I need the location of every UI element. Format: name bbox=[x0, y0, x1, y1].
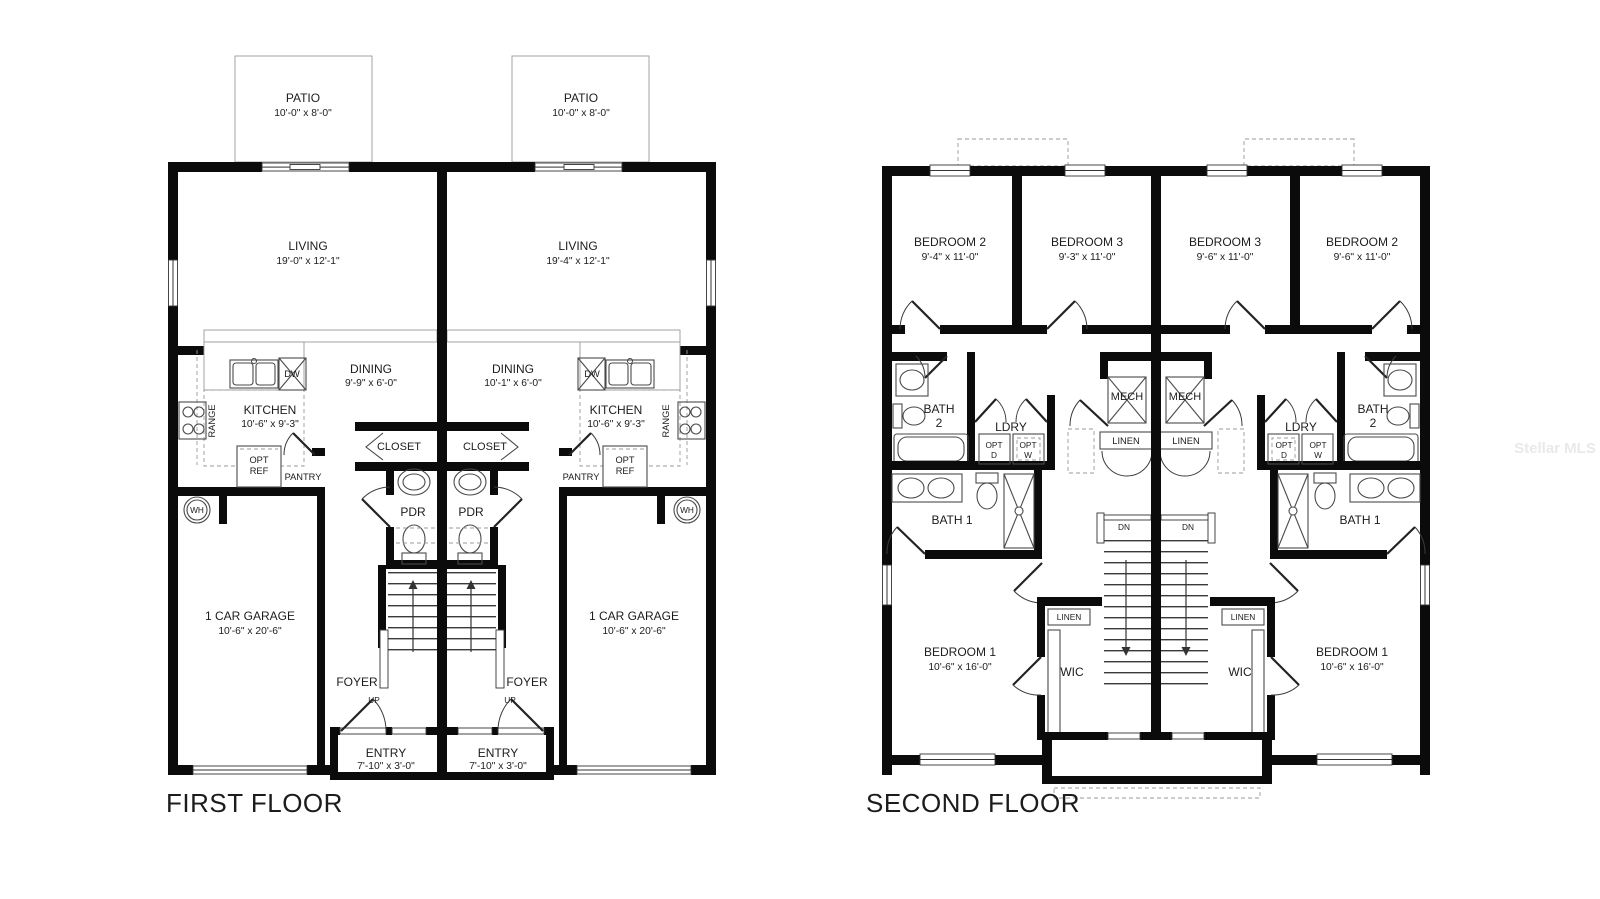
label-wh-left: WH bbox=[190, 505, 204, 515]
dims-patio-left: 10'-0" x 8'-0" bbox=[274, 108, 332, 119]
label-linen-wic-left: LINEN bbox=[1057, 612, 1081, 622]
label-range-left: RANGE bbox=[207, 404, 217, 437]
label-closet-right: CLOSET bbox=[463, 441, 507, 453]
label-bedroom1-left: BEDROOM 1 bbox=[924, 645, 996, 659]
label-optw1-right: OPT bbox=[1309, 440, 1326, 450]
label-dining-left: DINING bbox=[350, 362, 392, 376]
party-wall-second-floor bbox=[1151, 166, 1161, 732]
label-linen-wic-right: LINEN bbox=[1231, 612, 1255, 622]
dims-garage-right: 10'-6" x 20'-6" bbox=[602, 626, 666, 637]
label-dw-left: DW bbox=[284, 369, 300, 379]
label-range-right: RANGE bbox=[661, 404, 671, 437]
label-dn-left: DN bbox=[1118, 522, 1130, 532]
label-pantry-left: PANTRY bbox=[285, 472, 322, 482]
label-wic-left: WIC bbox=[1060, 665, 1084, 679]
label-living-left: LIVING bbox=[288, 239, 327, 253]
label-dw-right: DW bbox=[584, 369, 600, 379]
label-bedroom2-right: BEDROOM 2 bbox=[1326, 235, 1398, 249]
label-optref1-left: OPT bbox=[249, 455, 268, 465]
label-entry-left: ENTRY bbox=[366, 746, 406, 760]
label-closet-left: CLOSET bbox=[377, 441, 421, 453]
label-optd2-left: D bbox=[991, 450, 997, 460]
label-optw1-left: OPT bbox=[1019, 440, 1036, 450]
label-foyer-right: FOYER bbox=[506, 675, 548, 689]
second-floor-plan: BEDROOM 2 9'-4" x 11'-0" BEDROOM 3 9'-3"… bbox=[866, 139, 1430, 818]
label-optw2-right: W bbox=[1314, 450, 1322, 460]
label-ldry-right: LDRY bbox=[1285, 420, 1317, 434]
label-linen-hall-left: LINEN bbox=[1112, 436, 1139, 446]
label-pdr-left: PDR bbox=[400, 505, 426, 519]
dims-entry-right: 7'-10" x 3'-0" bbox=[469, 761, 527, 772]
label-pantry-right: PANTRY bbox=[563, 472, 600, 482]
dims-bedroom3-right: 9'-6" x 11'-0" bbox=[1197, 252, 1254, 263]
label-dn-right: DN bbox=[1182, 522, 1194, 532]
label-bath2b-right: 2 bbox=[1370, 416, 1377, 430]
dims-bedroom1-left: 10'-6" x 16'-0" bbox=[928, 662, 992, 673]
label-patio-right: PATIO bbox=[564, 91, 598, 105]
first-floor-title: FIRST FLOOR bbox=[166, 788, 343, 818]
label-patio-left: PATIO bbox=[286, 91, 320, 105]
label-optd1-left: OPT bbox=[985, 440, 1002, 450]
label-wic-right: WIC bbox=[1228, 665, 1252, 679]
label-wh-right: WH bbox=[680, 505, 694, 515]
label-kitchen-right: KITCHEN bbox=[590, 403, 643, 417]
label-garage-left: 1 CAR GARAGE bbox=[205, 609, 295, 623]
label-living-right: LIVING bbox=[558, 239, 597, 253]
dims-entry-left: 7'-10" x 3'-0" bbox=[357, 761, 415, 772]
label-optref2-right: REF bbox=[616, 466, 635, 476]
label-optd2-right: D bbox=[1281, 450, 1287, 460]
stellar-mls-watermark: Stellar MLS bbox=[1514, 440, 1596, 457]
dims-living-left: 19'-0" x 12'-1" bbox=[276, 256, 340, 267]
second-floor-title: SECOND FLOOR bbox=[866, 788, 1080, 818]
label-up-left: UP bbox=[368, 695, 380, 705]
label-optd1-right: OPT bbox=[1275, 440, 1292, 450]
label-dining-right: DINING bbox=[492, 362, 534, 376]
label-mech-left: MECH bbox=[1111, 391, 1143, 403]
label-bedroom3-left: BEDROOM 3 bbox=[1051, 235, 1123, 249]
label-foyer-left: FOYER bbox=[336, 675, 378, 689]
dims-dining-right: 10'-1" x 6'-0" bbox=[484, 378, 542, 389]
label-entry-right: ENTRY bbox=[478, 746, 518, 760]
label-ldry-left: LDRY bbox=[995, 420, 1027, 434]
floor-plan-drawing: PATIO 10'-0" x 8'-0" PATIO 10'-0" x 8'-0… bbox=[0, 0, 1600, 899]
label-mech-right: MECH bbox=[1169, 391, 1201, 403]
label-optref1-right: OPT bbox=[615, 455, 634, 465]
dims-bedroom1-right: 10'-6" x 16'-0" bbox=[1320, 662, 1384, 673]
label-bedroom1-right: BEDROOM 1 bbox=[1316, 645, 1388, 659]
label-bath2b-left: 2 bbox=[936, 416, 943, 430]
dims-living-right: 19'-4" x 12'-1" bbox=[546, 256, 610, 267]
label-bath1-left: BATH 1 bbox=[931, 513, 972, 527]
label-kitchen-left: KITCHEN bbox=[244, 403, 297, 417]
label-garage-right: 1 CAR GARAGE bbox=[589, 609, 679, 623]
dims-bedroom2-right: 9'-6" x 11'-0" bbox=[1334, 252, 1391, 263]
dims-dining-left: 9'-9" x 6'-0" bbox=[345, 378, 397, 389]
floor-plan-page: PATIO 10'-0" x 8'-0" PATIO 10'-0" x 8'-0… bbox=[0, 0, 1600, 899]
label-bath2a-left: BATH bbox=[923, 402, 954, 416]
dims-garage-left: 10'-6" x 20'-6" bbox=[218, 626, 282, 637]
label-optw2-left: W bbox=[1024, 450, 1032, 460]
dims-bedroom3-left: 9'-3" x 11'-0" bbox=[1059, 252, 1116, 263]
dims-bedroom2-left: 9'-4" x 11'-0" bbox=[922, 252, 979, 263]
label-bedroom2-left: BEDROOM 2 bbox=[914, 235, 986, 249]
dims-kitchen-right: 10'-6" x 9'-3" bbox=[587, 419, 645, 430]
label-linen-hall-right: LINEN bbox=[1172, 436, 1199, 446]
label-bath2a-right: BATH bbox=[1357, 402, 1388, 416]
label-bath1-right: BATH 1 bbox=[1339, 513, 1380, 527]
label-bedroom3-right: BEDROOM 3 bbox=[1189, 235, 1261, 249]
party-wall-first-floor bbox=[437, 162, 447, 780]
dims-patio-right: 10'-0" x 8'-0" bbox=[552, 108, 610, 119]
label-pdr-right: PDR bbox=[458, 505, 484, 519]
dims-kitchen-left: 10'-6" x 9'-3" bbox=[241, 419, 299, 430]
first-floor-plan: PATIO 10'-0" x 8'-0" PATIO 10'-0" x 8'-0… bbox=[166, 56, 716, 818]
label-up-right: UP bbox=[504, 695, 516, 705]
label-optref2-left: REF bbox=[250, 466, 269, 476]
